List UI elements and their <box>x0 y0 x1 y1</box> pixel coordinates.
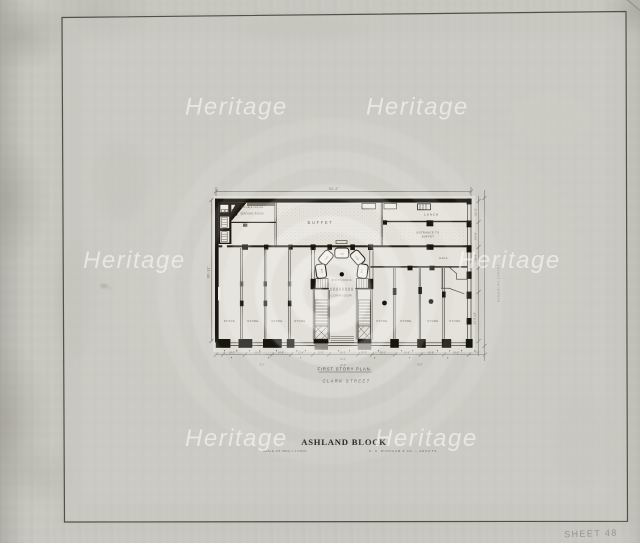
svg-text:SHEET 48: SHEET 48 <box>564 528 618 540</box>
svg-text:PRIVATE OFFICE: PRIVATE OFFICE <box>242 206 264 209</box>
svg-text:STORE: STORE <box>400 319 411 323</box>
svg-text:14'-6": 14'-6" <box>278 352 284 355</box>
svg-text:Heritage: Heritage <box>366 94 469 121</box>
svg-text:HALL: HALL <box>439 256 448 260</box>
svg-text:23'-8 1/2": 23'-8 1/2" <box>472 312 476 325</box>
svg-text:Heritage: Heritage <box>83 247 186 274</box>
svg-text:Heritage: Heritage <box>185 425 288 452</box>
svg-text:16'-8": 16'-8" <box>428 352 434 355</box>
svg-text:Heritage: Heritage <box>458 247 561 274</box>
svg-text:24'-2": 24'-2" <box>229 352 235 355</box>
svg-text:STORE: STORE <box>247 319 258 323</box>
svg-text:8'-2": 8'-2" <box>418 363 423 366</box>
svg-text:BUFFET: BUFFET <box>422 235 435 239</box>
svg-text:Heritage: Heritage <box>185 94 288 121</box>
svg-text:Heritage: Heritage <box>375 425 478 452</box>
svg-text:FIRST STORY PLAN.: FIRST STORY PLAN. <box>317 366 372 371</box>
svg-text:16'-1": 16'-1" <box>380 352 386 355</box>
